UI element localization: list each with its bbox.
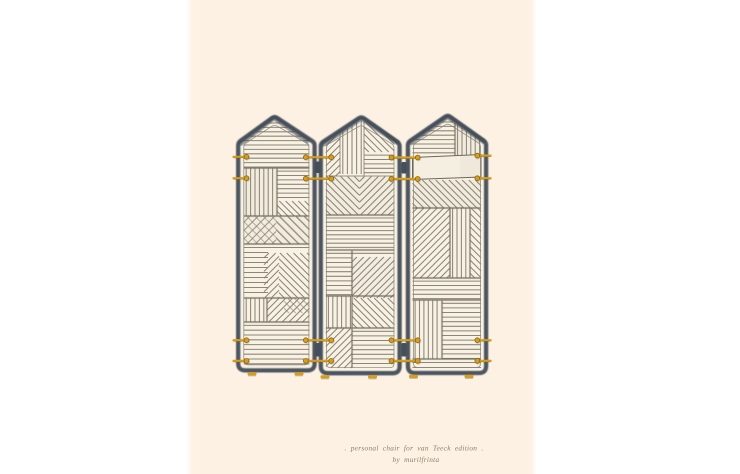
svg-text:by murilfrinta: by murilfrinta: [393, 455, 440, 464]
svg-text:. personal chair for van Teeck: . personal chair for van Teeck edition .: [344, 444, 483, 453]
